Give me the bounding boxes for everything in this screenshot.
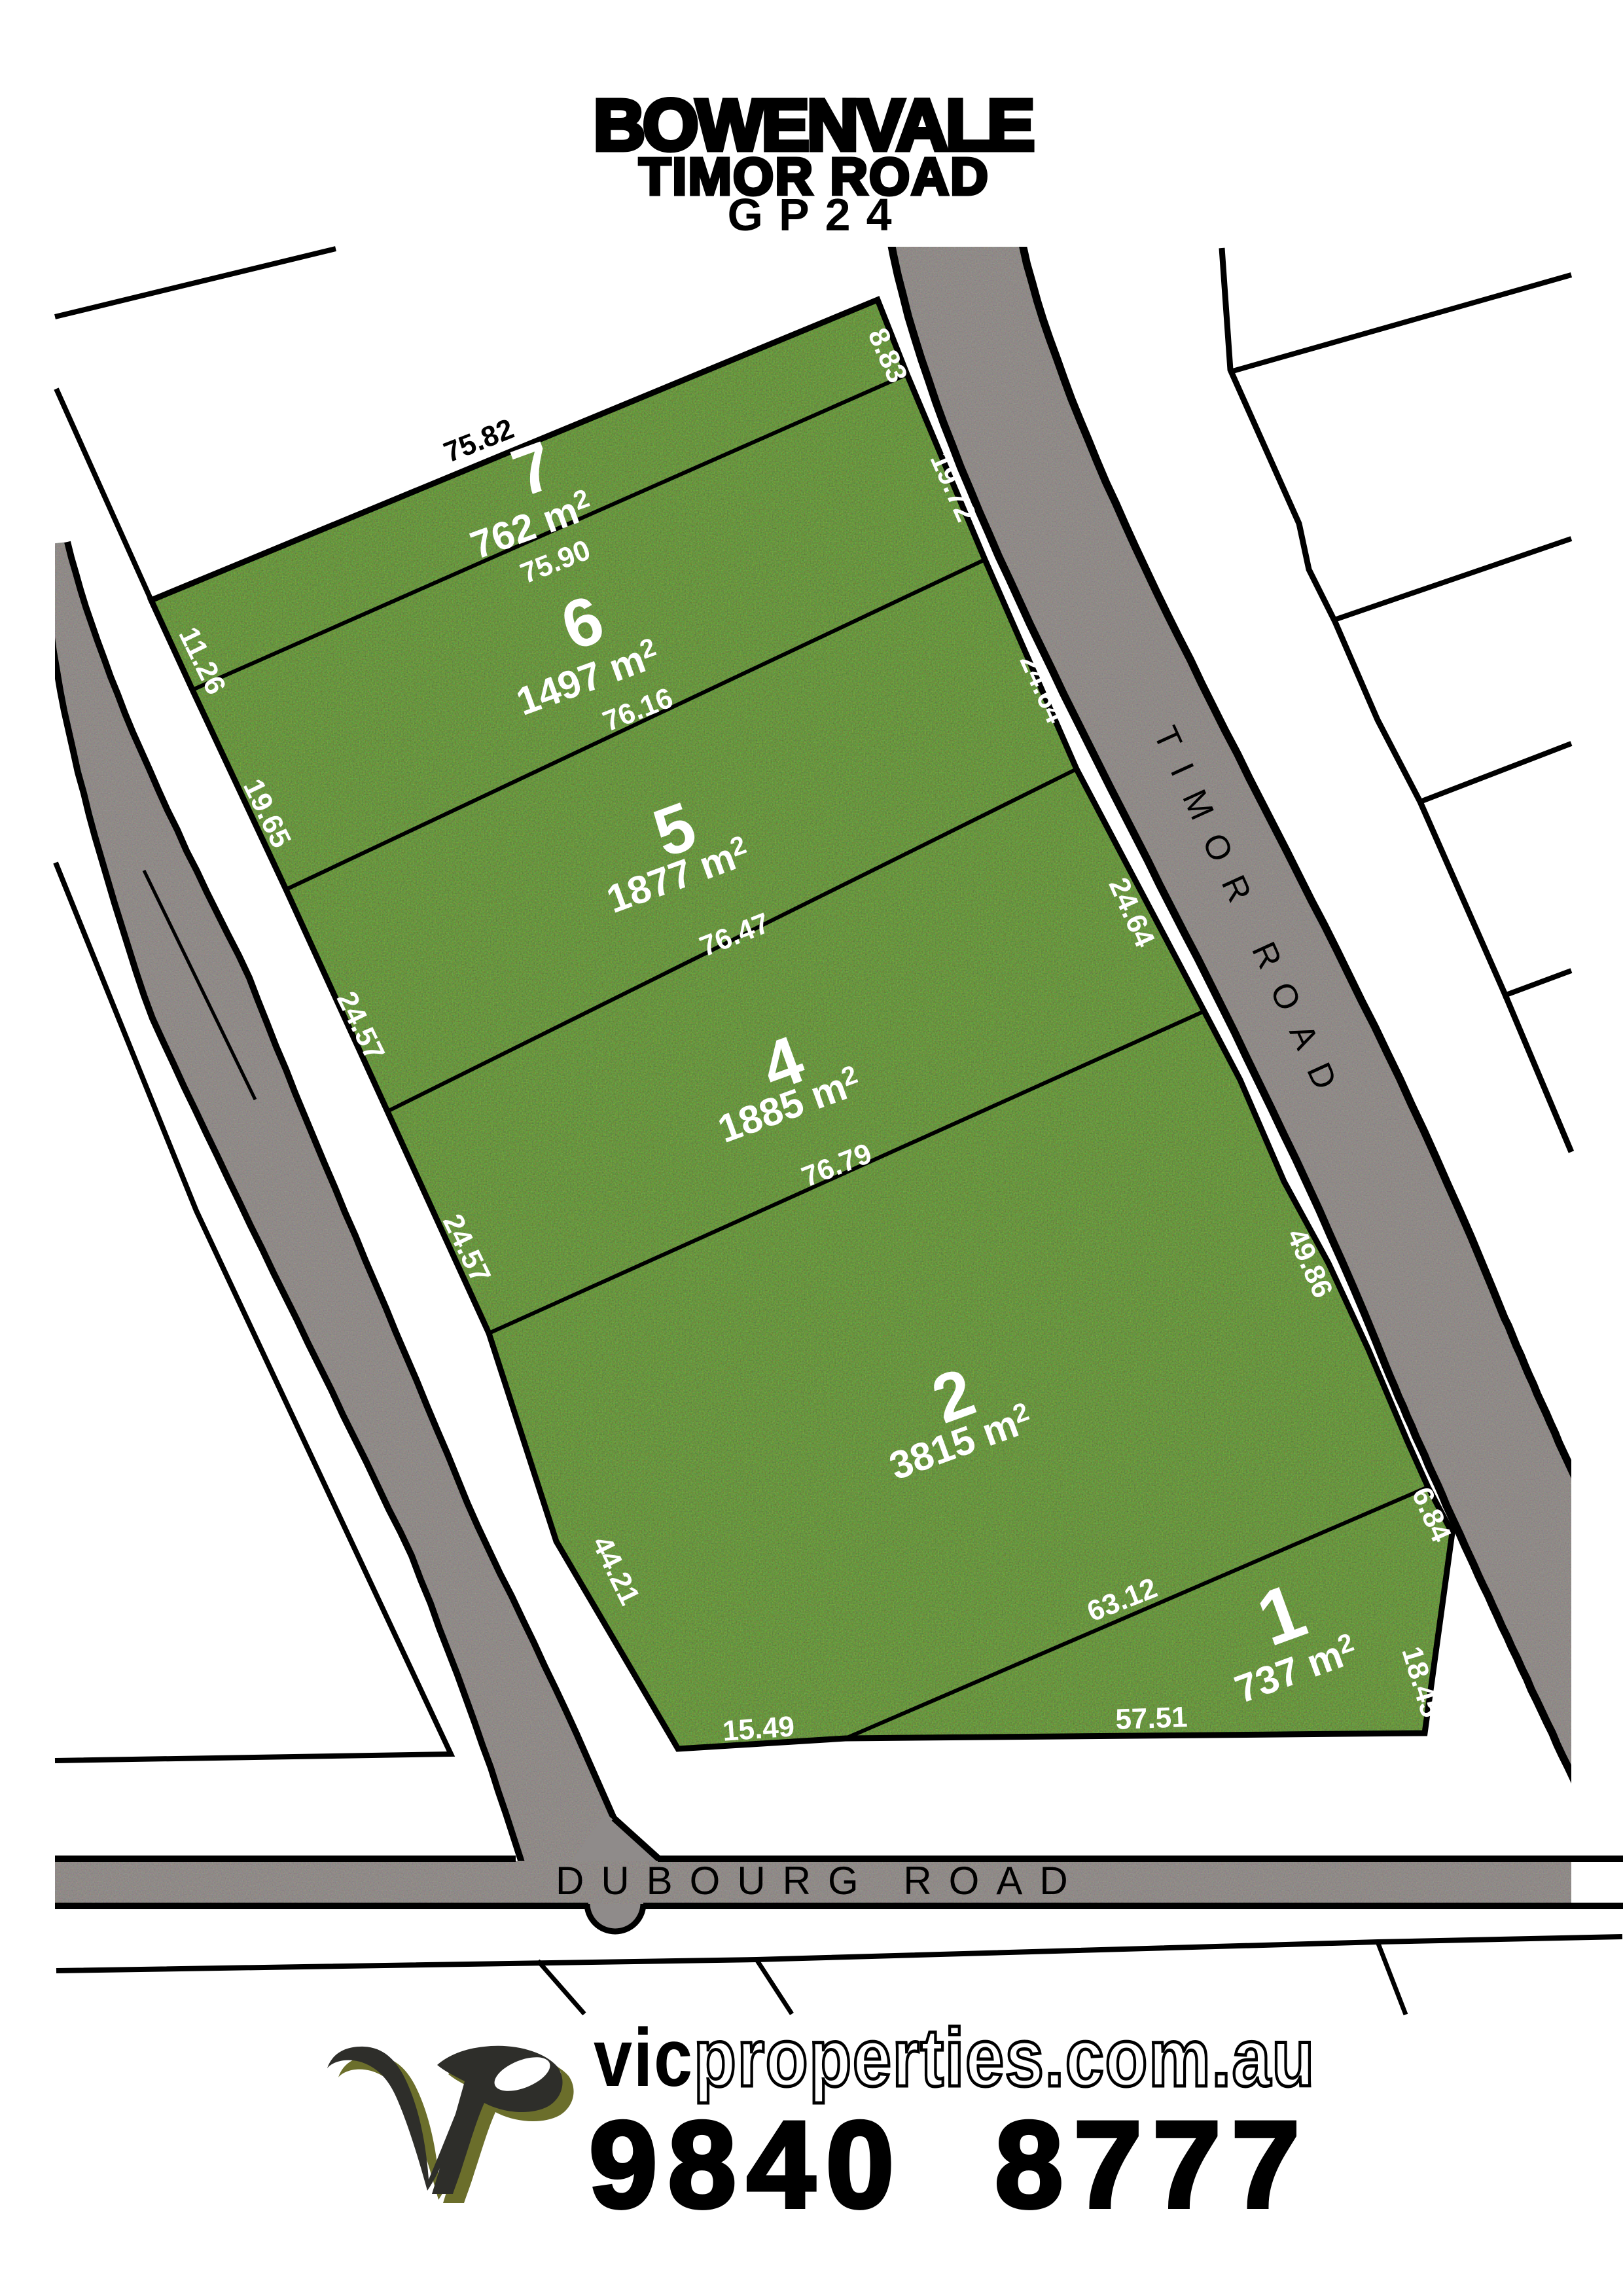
svg-text:8777: 8777 [995,2096,1310,2233]
svg-text:9840: 9840 [589,2096,904,2233]
svg-text:15.49: 15.49 [721,1710,795,1748]
svg-text:GP24: GP24 [728,189,908,240]
svg-text:57.51: 57.51 [1115,1701,1188,1736]
svg-text:vic: vic [594,2012,694,2104]
svg-text:properties.com.au: properties.com.au [694,2012,1315,2104]
svg-text:DUBOURG ROAD: DUBOURG ROAD [556,1859,1085,1903]
